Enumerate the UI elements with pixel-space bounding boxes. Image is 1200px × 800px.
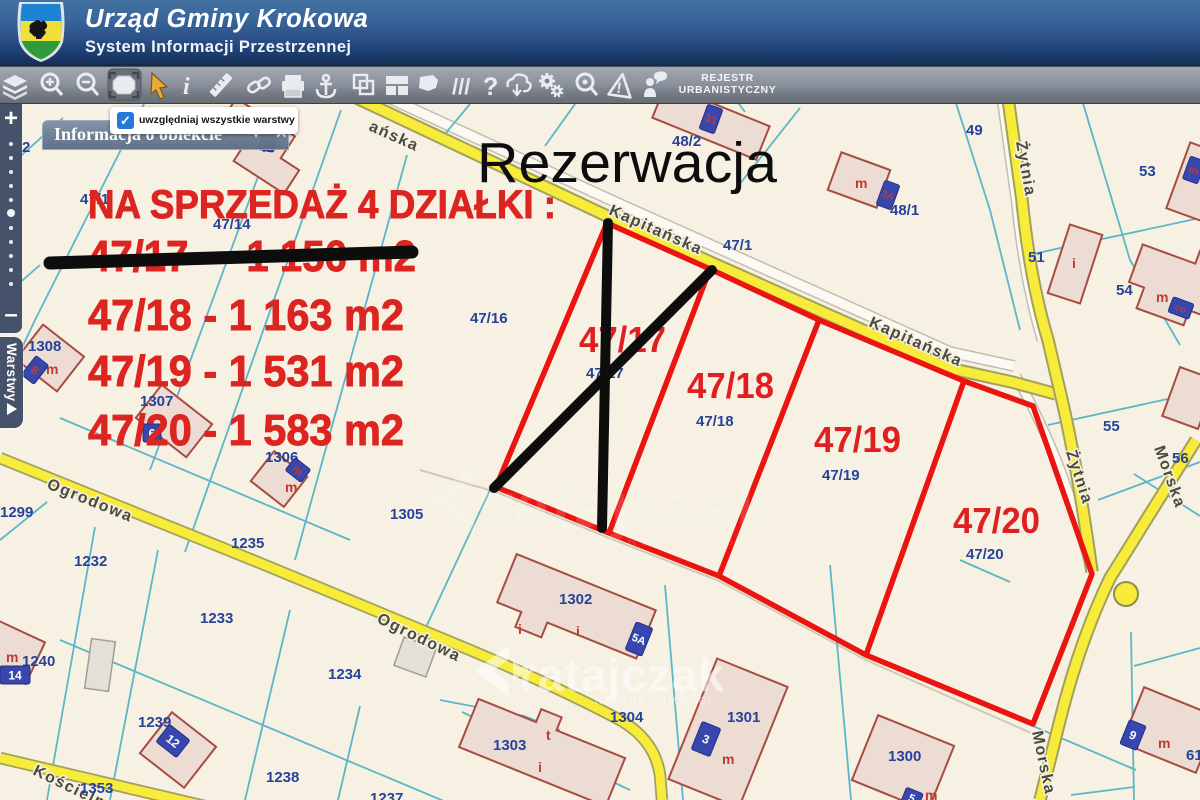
svg-text:56: 56 (1172, 450, 1189, 467)
svg-text:1238: 1238 (266, 769, 299, 786)
svg-text:47/19: 47/19 (814, 419, 901, 460)
svg-text:1234: 1234 (328, 666, 362, 683)
svg-text:ratajczak: ratajczak (489, 471, 773, 541)
svg-text:m: m (6, 649, 18, 665)
svg-text:NIERUCHOMOŚCI: NIERUCHOMOŚCI (595, 694, 714, 707)
svg-text:51: 51 (1028, 249, 1045, 266)
svg-text:1232: 1232 (74, 553, 107, 570)
svg-text:i: i (538, 759, 542, 775)
svg-text:47/18: 47/18 (696, 413, 734, 430)
svg-text:47/16: 47/16 (470, 310, 508, 327)
svg-text:1235: 1235 (231, 535, 264, 552)
svg-text:47/18 - 1 163 m2: 47/18 - 1 163 m2 (88, 291, 404, 340)
svg-text:m: m (855, 175, 867, 191)
svg-text:?: ? (483, 73, 498, 101)
svg-text:1233: 1233 (200, 610, 233, 627)
svg-text:ratajczak: ratajczak (519, 649, 725, 701)
svg-text:47/18: 47/18 (687, 365, 774, 406)
svg-text:14: 14 (8, 668, 22, 682)
svg-text:m: m (285, 479, 297, 495)
svg-text:1303: 1303 (493, 737, 526, 754)
svg-text:48/1: 48/1 (890, 202, 919, 219)
svg-text:61: 61 (1186, 747, 1200, 764)
svg-text:i: i (576, 623, 580, 639)
svg-text:i: i (518, 621, 522, 637)
svg-text:m: m (1156, 289, 1168, 305)
svg-text:m: m (925, 787, 937, 800)
svg-text:49: 49 (966, 122, 983, 139)
svg-text:47/20 - 1 583 m2: 47/20 - 1 583 m2 (88, 406, 404, 455)
svg-text:i: i (1072, 255, 1076, 271)
svg-text:1304: 1304 (610, 709, 644, 726)
svg-text:47/20: 47/20 (966, 546, 1004, 563)
svg-text:1302: 1302 (559, 591, 592, 608)
svg-text:47/20: 47/20 (953, 500, 1040, 541)
svg-text:t: t (546, 727, 551, 743)
svg-text:m: m (722, 751, 734, 767)
svg-text:m: m (46, 361, 58, 377)
svg-text:i: i (183, 74, 190, 100)
svg-text:m: m (1158, 735, 1170, 751)
svg-text:NIERUCHOMOŚCI: NIERUCHOMOŚCI (594, 531, 758, 548)
svg-text:!: ! (615, 79, 622, 97)
svg-text:1237: 1237 (370, 790, 403, 800)
svg-text:1300: 1300 (888, 748, 921, 765)
svg-text:47/19 - 1 531 m2: 47/19 - 1 531 m2 (88, 347, 404, 396)
svg-text:2: 2 (22, 139, 30, 156)
svg-text:53: 53 (1139, 163, 1156, 180)
svg-text:47/1: 47/1 (723, 237, 752, 254)
svg-text:55: 55 (1103, 418, 1120, 435)
svg-text:1301: 1301 (727, 709, 760, 726)
svg-text:Rezerwacja: Rezerwacja (477, 131, 777, 195)
svg-text:1299: 1299 (0, 504, 33, 521)
svg-text:1353: 1353 (80, 780, 113, 797)
svg-text:1308: 1308 (28, 338, 61, 355)
svg-text:1305: 1305 (390, 506, 423, 523)
svg-text:47/19: 47/19 (822, 467, 860, 484)
svg-text:///: /// (452, 74, 470, 99)
svg-text:54: 54 (1116, 282, 1133, 299)
